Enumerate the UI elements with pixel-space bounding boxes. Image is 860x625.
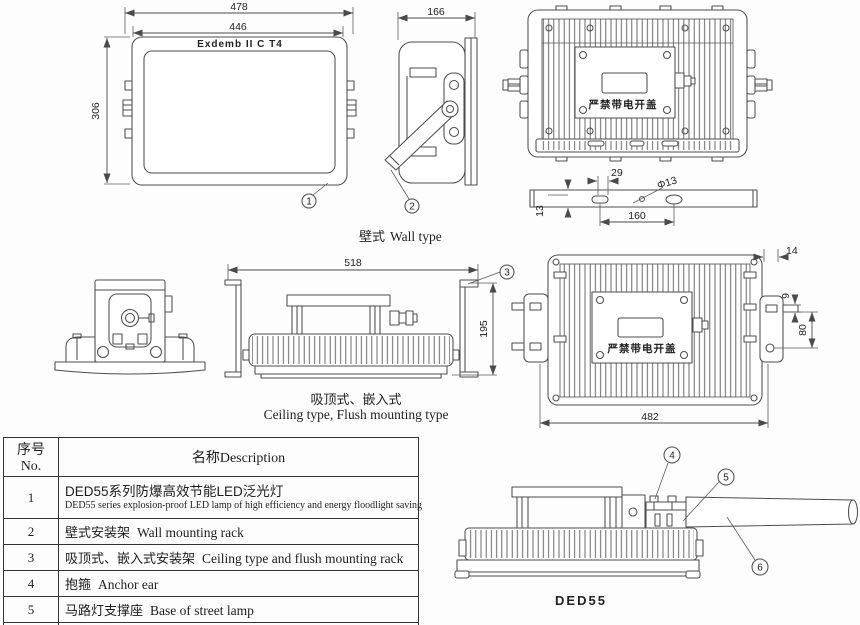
- svg-text:2: 2: [409, 202, 415, 213]
- dim-ceiling-height: 195: [478, 320, 490, 338]
- wall-mount-side-view: 166 2: [385, 6, 477, 213]
- ceiling-mount-view: 518 3 195: [225, 257, 514, 378]
- warning-text-top: 严禁带电开盖: [588, 98, 658, 111]
- spec-sheet: 478 446 306 Exdemb II C T4 1 166: [0, 0, 860, 625]
- row-no: 3: [4, 545, 59, 571]
- dim-bar-slot: 29: [611, 167, 623, 179]
- callout-3: 3: [500, 265, 514, 279]
- callout-6: 6: [752, 559, 768, 575]
- col-header-no: 序号No.: [4, 438, 59, 477]
- end-view: [55, 280, 205, 374]
- row-description-zh: 壁式安装架: [65, 525, 130, 540]
- dim-side-depth: 166: [427, 6, 445, 18]
- row-no: 4: [4, 571, 59, 597]
- row-no: 2: [4, 519, 59, 545]
- table-header-row: 序号No. 名称Description: [4, 438, 419, 477]
- base-plate: [55, 362, 205, 374]
- row-description-en: Base of street lamp: [150, 603, 254, 618]
- callout-5: 5: [718, 469, 734, 485]
- table-row: 3 吸顶式、嵌入式安装架Ceiling type and flush mount…: [4, 545, 419, 571]
- col-header-description: 名称Description: [59, 438, 419, 477]
- dim-mid-lug: 14: [786, 245, 798, 257]
- street-lamp-view: 4 5 6 DED55: [455, 447, 858, 608]
- dim-bar-thickness: 13: [534, 205, 546, 217]
- anchor-ear: [646, 502, 686, 530]
- row-description-en: Wall mounting rack: [137, 525, 244, 540]
- table-row: 4 抱箍Anchor ear: [4, 571, 419, 597]
- dim-ceiling-width: 518: [344, 257, 362, 269]
- dim-mid-width: 482: [641, 411, 659, 423]
- row-description: 吸顶式、嵌入式安装架Ceiling type and flush mountin…: [59, 545, 419, 571]
- callout-1: 1: [302, 194, 316, 208]
- row-description-zh: 抱箍: [65, 577, 91, 592]
- callout-4: 4: [664, 447, 680, 463]
- dim-front-inner-width: 446: [229, 21, 247, 33]
- row-description-zh: DED55系列防爆高效节能LED泛光灯: [65, 484, 412, 500]
- ex-marking-label: Exdemb II C T4: [197, 39, 283, 50]
- row-description-en: Ceiling type and flush mounting rack: [202, 551, 403, 566]
- row-description-en: DED55 series explosion-proof LED lamp of…: [65, 500, 412, 511]
- dim-mid-pin-spacing: 80: [797, 324, 809, 336]
- back-view-top: 严禁带电开盖: [503, 6, 772, 161]
- row-description: 抱箍Anchor ear: [59, 571, 419, 597]
- row-description-en: Anchor ear: [98, 577, 158, 592]
- callout-2: 2: [405, 199, 419, 213]
- svg-text:3: 3: [504, 268, 510, 279]
- dim-front-outer-width: 478: [230, 1, 248, 13]
- dim-bar-hole-dia: Φ13: [656, 174, 679, 191]
- table-row: 1 DED55系列防爆高效节能LED泛光灯 DED55 series explo…: [4, 477, 419, 519]
- heatsink-fins: [252, 336, 450, 364]
- dim-bar-spacing: 160: [628, 210, 646, 222]
- svg-text:1: 1: [306, 197, 312, 208]
- row-no: 1: [4, 477, 59, 519]
- mounting-bar-detail: Φ13 29 160 13: [530, 167, 757, 226]
- model-label: DED55: [555, 593, 607, 608]
- parts-table: 序号No. 名称Description 1 DED55系列防爆高效节能LED泛光…: [3, 437, 419, 625]
- wall-type-label: 壁式 Wall type: [359, 229, 442, 244]
- table-row: 5 马路灯支撑座Base of street lamp: [4, 597, 419, 623]
- warning-text-mid: 严禁带电开盖: [607, 342, 677, 355]
- table-row: 2 壁式安装架Wall mounting rack: [4, 519, 419, 545]
- row-no: 5: [4, 597, 59, 623]
- back-view-mid: 严禁带电开盖 14 9 80 482: [512, 245, 818, 428]
- ceiling-type-label: 吸顶式、嵌入式 Ceiling type, Flush mounting typ…: [264, 392, 449, 422]
- row-description-zh: 马路灯支撑座: [65, 603, 143, 618]
- row-description-zh: 吸顶式、嵌入式安装架: [65, 551, 195, 566]
- front-view: 478 446 306 Exdemb II C T4 1: [90, 1, 356, 208]
- left-bracket: [524, 294, 548, 362]
- cable-gland: [122, 310, 139, 327]
- row-description: 壁式安装架Wall mounting rack: [59, 519, 419, 545]
- row-description: DED55系列防爆高效节能LED泛光灯 DED55 series explosi…: [59, 477, 419, 519]
- ceiling-type-zh: 吸顶式、嵌入式: [310, 392, 401, 407]
- svg-text:5: 5: [723, 473, 729, 484]
- lamppost: [686, 497, 853, 527]
- svg-text:4: 4: [669, 451, 675, 462]
- wall-type-zh: 壁式: [359, 229, 385, 244]
- dim-mid-pin: 9: [780, 293, 792, 299]
- wall-type-en: Wall type: [390, 229, 442, 244]
- row-description: 马路灯支撑座Base of street lamp: [59, 597, 419, 623]
- heatsink-fins: [468, 530, 694, 558]
- dim-front-height: 306: [90, 102, 102, 120]
- ceiling-type-en: Ceiling type, Flush mounting type: [264, 407, 449, 422]
- svg-text:6: 6: [757, 563, 763, 574]
